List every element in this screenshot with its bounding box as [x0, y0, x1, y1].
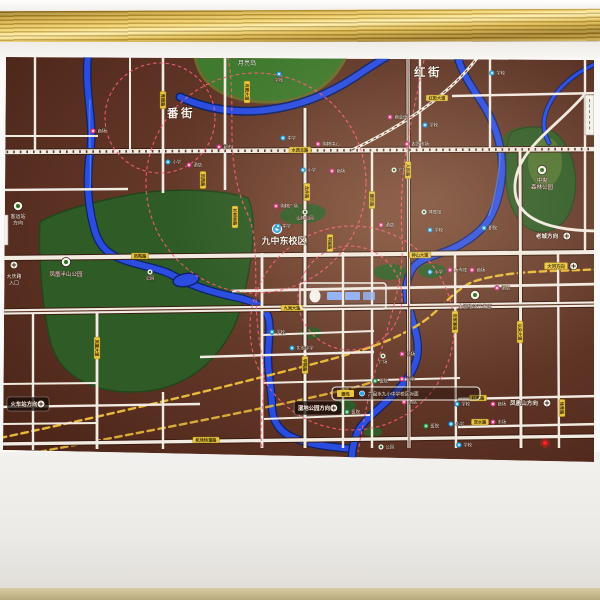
road-name-label: 双水路 — [471, 419, 488, 426]
compass-icon — [10, 261, 18, 269]
sign-fenghuangshan-direction: 凤凰山方向 — [510, 399, 551, 407]
landmark-label: 客运站 — [10, 213, 25, 220]
sign-railway-station-direction: 火车站方向 — [7, 397, 49, 411]
road-name-text: 体育路 — [558, 402, 565, 415]
compass-icon — [543, 399, 551, 407]
photo-of-wall-map: { "photo": {"subject": "real-estate dist… — [0, 0, 600, 600]
sign-text: 凤凰山方向 — [510, 399, 538, 407]
marker-label: 学校 — [462, 401, 471, 408]
marker-label: 商场 — [498, 401, 507, 408]
marker-school: 学校 — [454, 401, 470, 408]
marker-school: 小学 — [448, 421, 464, 428]
landmark-label: 入口 — [9, 281, 19, 287]
sign-wetland-park-direction: 湿地公园方向 — [294, 401, 342, 415]
route-shield — [0, 215, 8, 245]
strip-chip: 德坞 — [341, 390, 349, 397]
road-name-label: 凤凰大道 — [93, 337, 100, 359]
landmark-label: 大庆路 — [6, 273, 21, 280]
compass-icon — [330, 404, 338, 412]
strip-text: 六盘水九小中学校区对面 — [368, 391, 419, 398]
marker-label: 商场 — [98, 128, 107, 135]
road-name-label: 体育路 — [558, 399, 565, 416]
marker-mall: 商场 — [490, 401, 506, 408]
district-label: 番街 — [166, 106, 195, 120]
marker-label: 市场 — [498, 419, 507, 426]
marker-hosp: 医院 — [344, 409, 360, 416]
road-name-text: 凤鸣路 — [134, 253, 147, 260]
marker-label: 学校 — [464, 442, 473, 449]
marker-hosp: 医院 — [423, 423, 439, 430]
road-name-text: 育德路 — [159, 94, 166, 107]
marker-label: 小学 — [456, 421, 465, 428]
sign-text: 火车站方向 — [11, 400, 38, 408]
road-name-text: 双水路 — [474, 419, 487, 426]
landmark-label: 方向 — [13, 220, 23, 227]
road-name-text: 机场快速路 — [196, 437, 218, 444]
road-name-text: 凤凰大道 — [93, 340, 100, 358]
marker-label: 医院 — [352, 409, 361, 416]
compass-icon — [37, 400, 45, 408]
red-light — [543, 441, 547, 445]
marker-label: 医院 — [431, 423, 440, 430]
road-name-label: 机场快速路 — [193, 437, 220, 444]
road-name-label: 凤鸣路 — [131, 253, 148, 260]
sign-text: 湿地公园方向 — [298, 404, 330, 412]
landmark-label: 凤凰半山公园 — [49, 270, 83, 278]
road-name-label: 育德路 — [159, 91, 166, 108]
marker-mall: 市场 — [490, 419, 506, 426]
marker-school: 学校 — [456, 442, 472, 449]
map-board: 番街红街月亮岛九中东校区中央森林公园凤凰半山公园大庆路入口大河经济开发区客运站方… — [0, 0, 600, 600]
marker-mall: 商场 — [90, 128, 106, 135]
